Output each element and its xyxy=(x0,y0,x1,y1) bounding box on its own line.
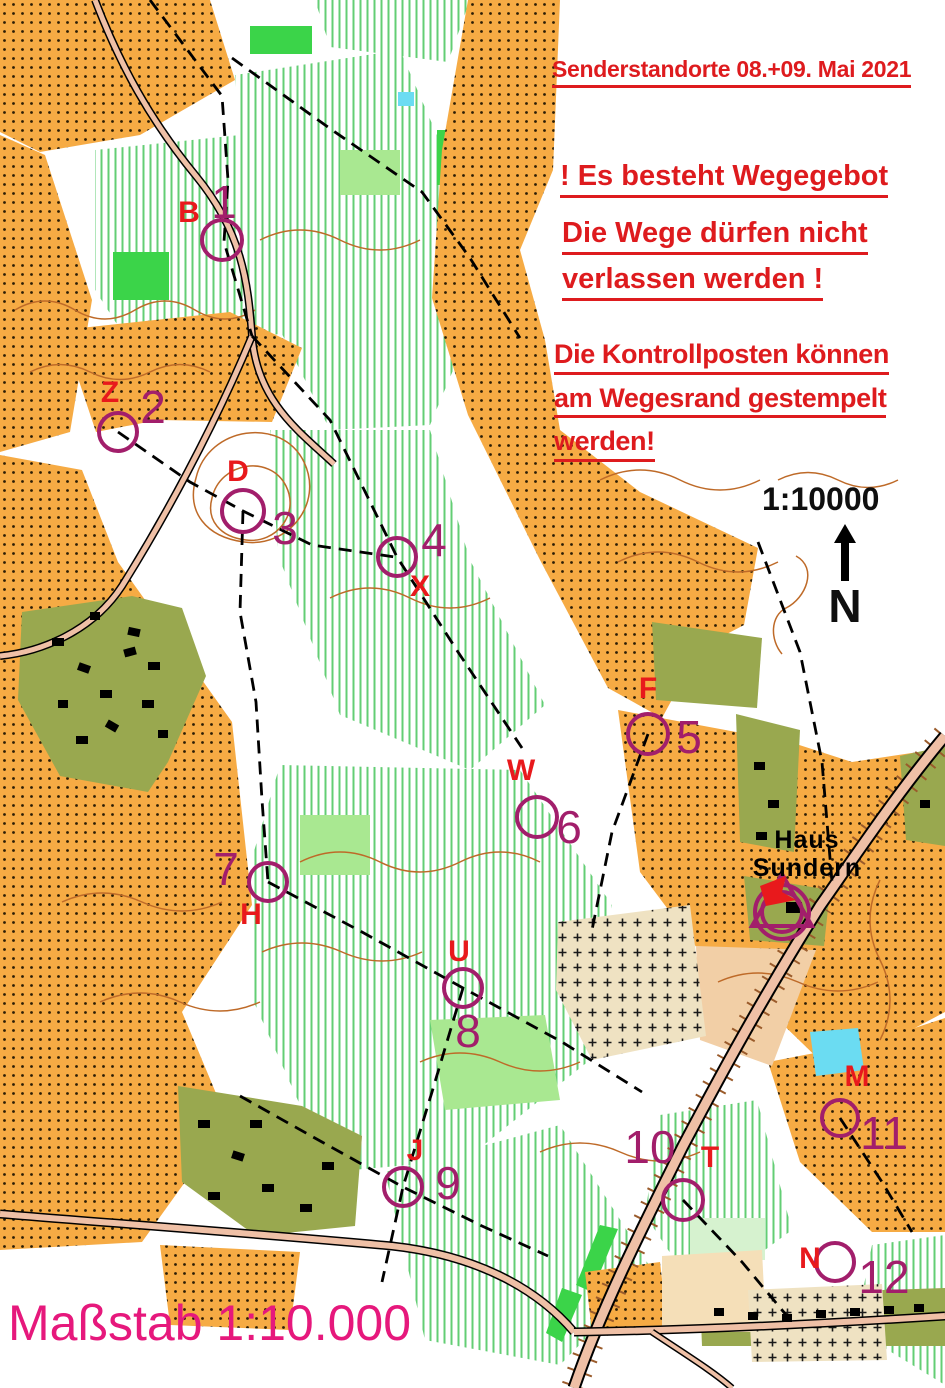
control-circle-10 xyxy=(661,1178,705,1222)
control-circle-11 xyxy=(820,1098,860,1138)
control-number-12: 12 xyxy=(858,1250,909,1304)
controls-layer: 1B2Z3D4X5F6W7H8U9J10T11M12N xyxy=(0,0,945,1388)
control-letter-M: M xyxy=(845,1060,870,1094)
control-letter-Z: Z xyxy=(101,376,119,410)
control-number-3: 3 xyxy=(272,501,298,555)
control-letter-B: B xyxy=(178,196,200,230)
control-number-5: 5 xyxy=(676,710,702,764)
control-number-10: 10 xyxy=(624,1120,675,1174)
control-letter-U: U xyxy=(448,935,470,969)
control-letter-J: J xyxy=(407,1134,424,1168)
control-letter-X: X xyxy=(410,570,430,604)
control-number-8: 8 xyxy=(455,1004,481,1058)
control-letter-H: H xyxy=(240,898,262,932)
control-number-2: 2 xyxy=(140,380,166,434)
control-letter-F: F xyxy=(639,672,657,706)
control-letter-T: T xyxy=(701,1141,719,1175)
control-circle-2 xyxy=(97,411,139,453)
control-letter-N: N xyxy=(799,1242,821,1276)
control-number-6: 6 xyxy=(556,800,582,854)
control-number-9: 9 xyxy=(435,1156,461,1210)
orienteering-map-page: Senderstandorte 08.+09. Mai 2021 ! Es be… xyxy=(0,0,945,1388)
control-circle-5 xyxy=(626,712,670,756)
control-number-4: 4 xyxy=(421,513,447,567)
control-number-7: 7 xyxy=(213,842,239,896)
control-circle-8 xyxy=(442,967,484,1009)
control-circle-6 xyxy=(515,795,559,839)
control-number-11: 11 xyxy=(860,1106,908,1160)
control-number-1: 1 xyxy=(211,175,237,229)
control-circle-9 xyxy=(382,1166,424,1208)
control-letter-W: W xyxy=(507,754,535,788)
control-letter-D: D xyxy=(227,455,249,489)
control-circle-7 xyxy=(247,861,289,903)
control-circle-3 xyxy=(220,488,266,534)
